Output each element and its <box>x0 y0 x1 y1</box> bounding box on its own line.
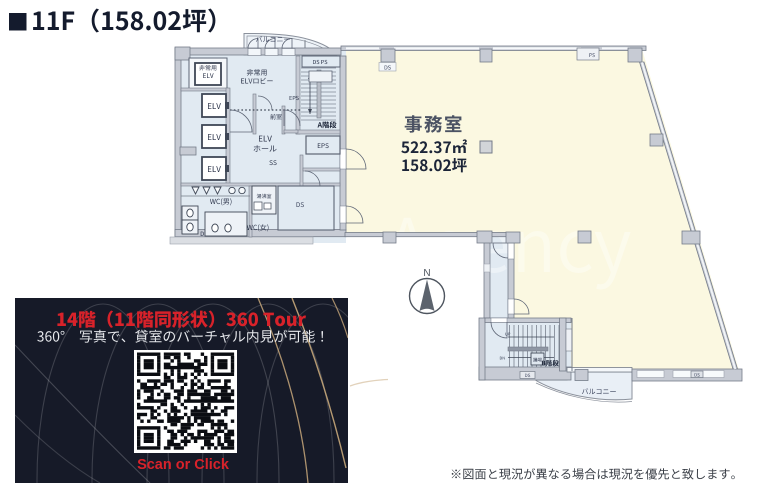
svg-text:N: N <box>423 268 430 279</box>
svg-text:Scan or Click: Scan or Click <box>137 457 230 473</box>
